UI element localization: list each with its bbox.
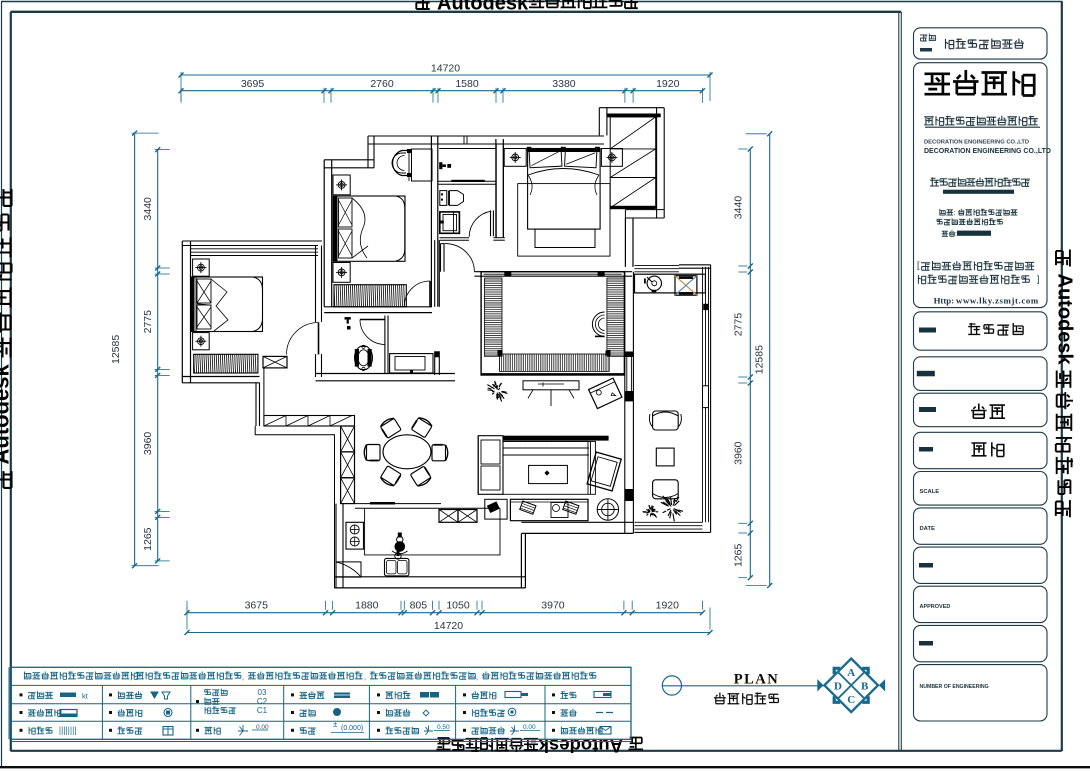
svg-text:APPROVED: APPROVED xyxy=(920,604,951,610)
svg-text:12585: 12585 xyxy=(754,345,766,374)
svg-text:12585: 12585 xyxy=(110,335,122,364)
svg-text:1050: 1050 xyxy=(446,600,470,612)
svg-text:PLAN: PLAN xyxy=(734,672,779,688)
svg-text:kt: kt xyxy=(82,692,89,701)
svg-text:3960: 3960 xyxy=(142,432,154,456)
svg-text:2775: 2775 xyxy=(142,310,154,334)
svg-text:1880: 1880 xyxy=(355,600,379,612)
svg-text:A: A xyxy=(847,667,855,679)
svg-text:3440: 3440 xyxy=(142,197,154,221)
svg-text:3380: 3380 xyxy=(552,78,576,90)
svg-text:www.lky.zsmjt.com: www.lky.zsmjt.com xyxy=(956,295,1039,305)
svg-text:NUMBER OF ENGINEERING: NUMBER OF ENGINEERING xyxy=(920,684,989,690)
svg-text:Autodesk: Autodesk xyxy=(0,364,14,465)
svg-text:1265: 1265 xyxy=(142,527,154,551)
svg-text:3440: 3440 xyxy=(733,196,745,220)
svg-text:03: 03 xyxy=(258,688,267,697)
svg-text:,: , xyxy=(242,673,244,682)
svg-text:,: , xyxy=(130,673,132,682)
svg-text:C: C xyxy=(847,694,855,706)
svg-text:805: 805 xyxy=(410,600,428,612)
svg-text:3695: 3695 xyxy=(241,78,265,90)
svg-text:2760: 2760 xyxy=(370,78,394,90)
svg-text:14720: 14720 xyxy=(434,620,463,632)
svg-text:3970: 3970 xyxy=(541,600,565,612)
svg-text:Autodesk: Autodesk xyxy=(1054,274,1076,366)
svg-text:1265: 1265 xyxy=(733,544,745,568)
svg-text:DECORATION ENGINEERING CO.,LTD: DECORATION ENGINEERING CO.,LTD xyxy=(924,140,1029,146)
svg-text:DECORATION ENGINEERING CO.,LTD: DECORATION ENGINEERING CO.,LTD xyxy=(924,148,1051,155)
svg-text:C1: C1 xyxy=(257,706,268,715)
svg-text:,: , xyxy=(476,673,478,682)
svg-text:C2: C2 xyxy=(257,697,268,706)
svg-text:,: , xyxy=(364,673,366,682)
svg-text:SCALE: SCALE xyxy=(920,489,940,495)
svg-text:±: ± xyxy=(333,720,338,729)
svg-text:Http:: Http: xyxy=(934,295,955,305)
svg-text:1920: 1920 xyxy=(656,600,680,612)
svg-text:3675: 3675 xyxy=(245,600,269,612)
svg-text::: : xyxy=(954,210,956,217)
svg-text:1920: 1920 xyxy=(656,78,680,90)
svg-text:D: D xyxy=(834,680,842,692)
svg-text:3960: 3960 xyxy=(733,441,745,465)
svg-text:DATE: DATE xyxy=(920,526,935,532)
svg-text:14720: 14720 xyxy=(431,63,460,75)
svg-text:0.50: 0.50 xyxy=(437,724,450,731)
svg-text:0.00: 0.00 xyxy=(523,724,536,731)
svg-text:(0.000): (0.000) xyxy=(341,725,363,732)
svg-text:]: ] xyxy=(1037,274,1040,284)
svg-text:1580: 1580 xyxy=(455,78,479,90)
svg-text:2775: 2775 xyxy=(733,313,745,337)
svg-text:B: B xyxy=(861,680,869,692)
svg-text::: : xyxy=(955,231,957,238)
svg-text:Autodesk: Autodesk xyxy=(437,0,529,15)
